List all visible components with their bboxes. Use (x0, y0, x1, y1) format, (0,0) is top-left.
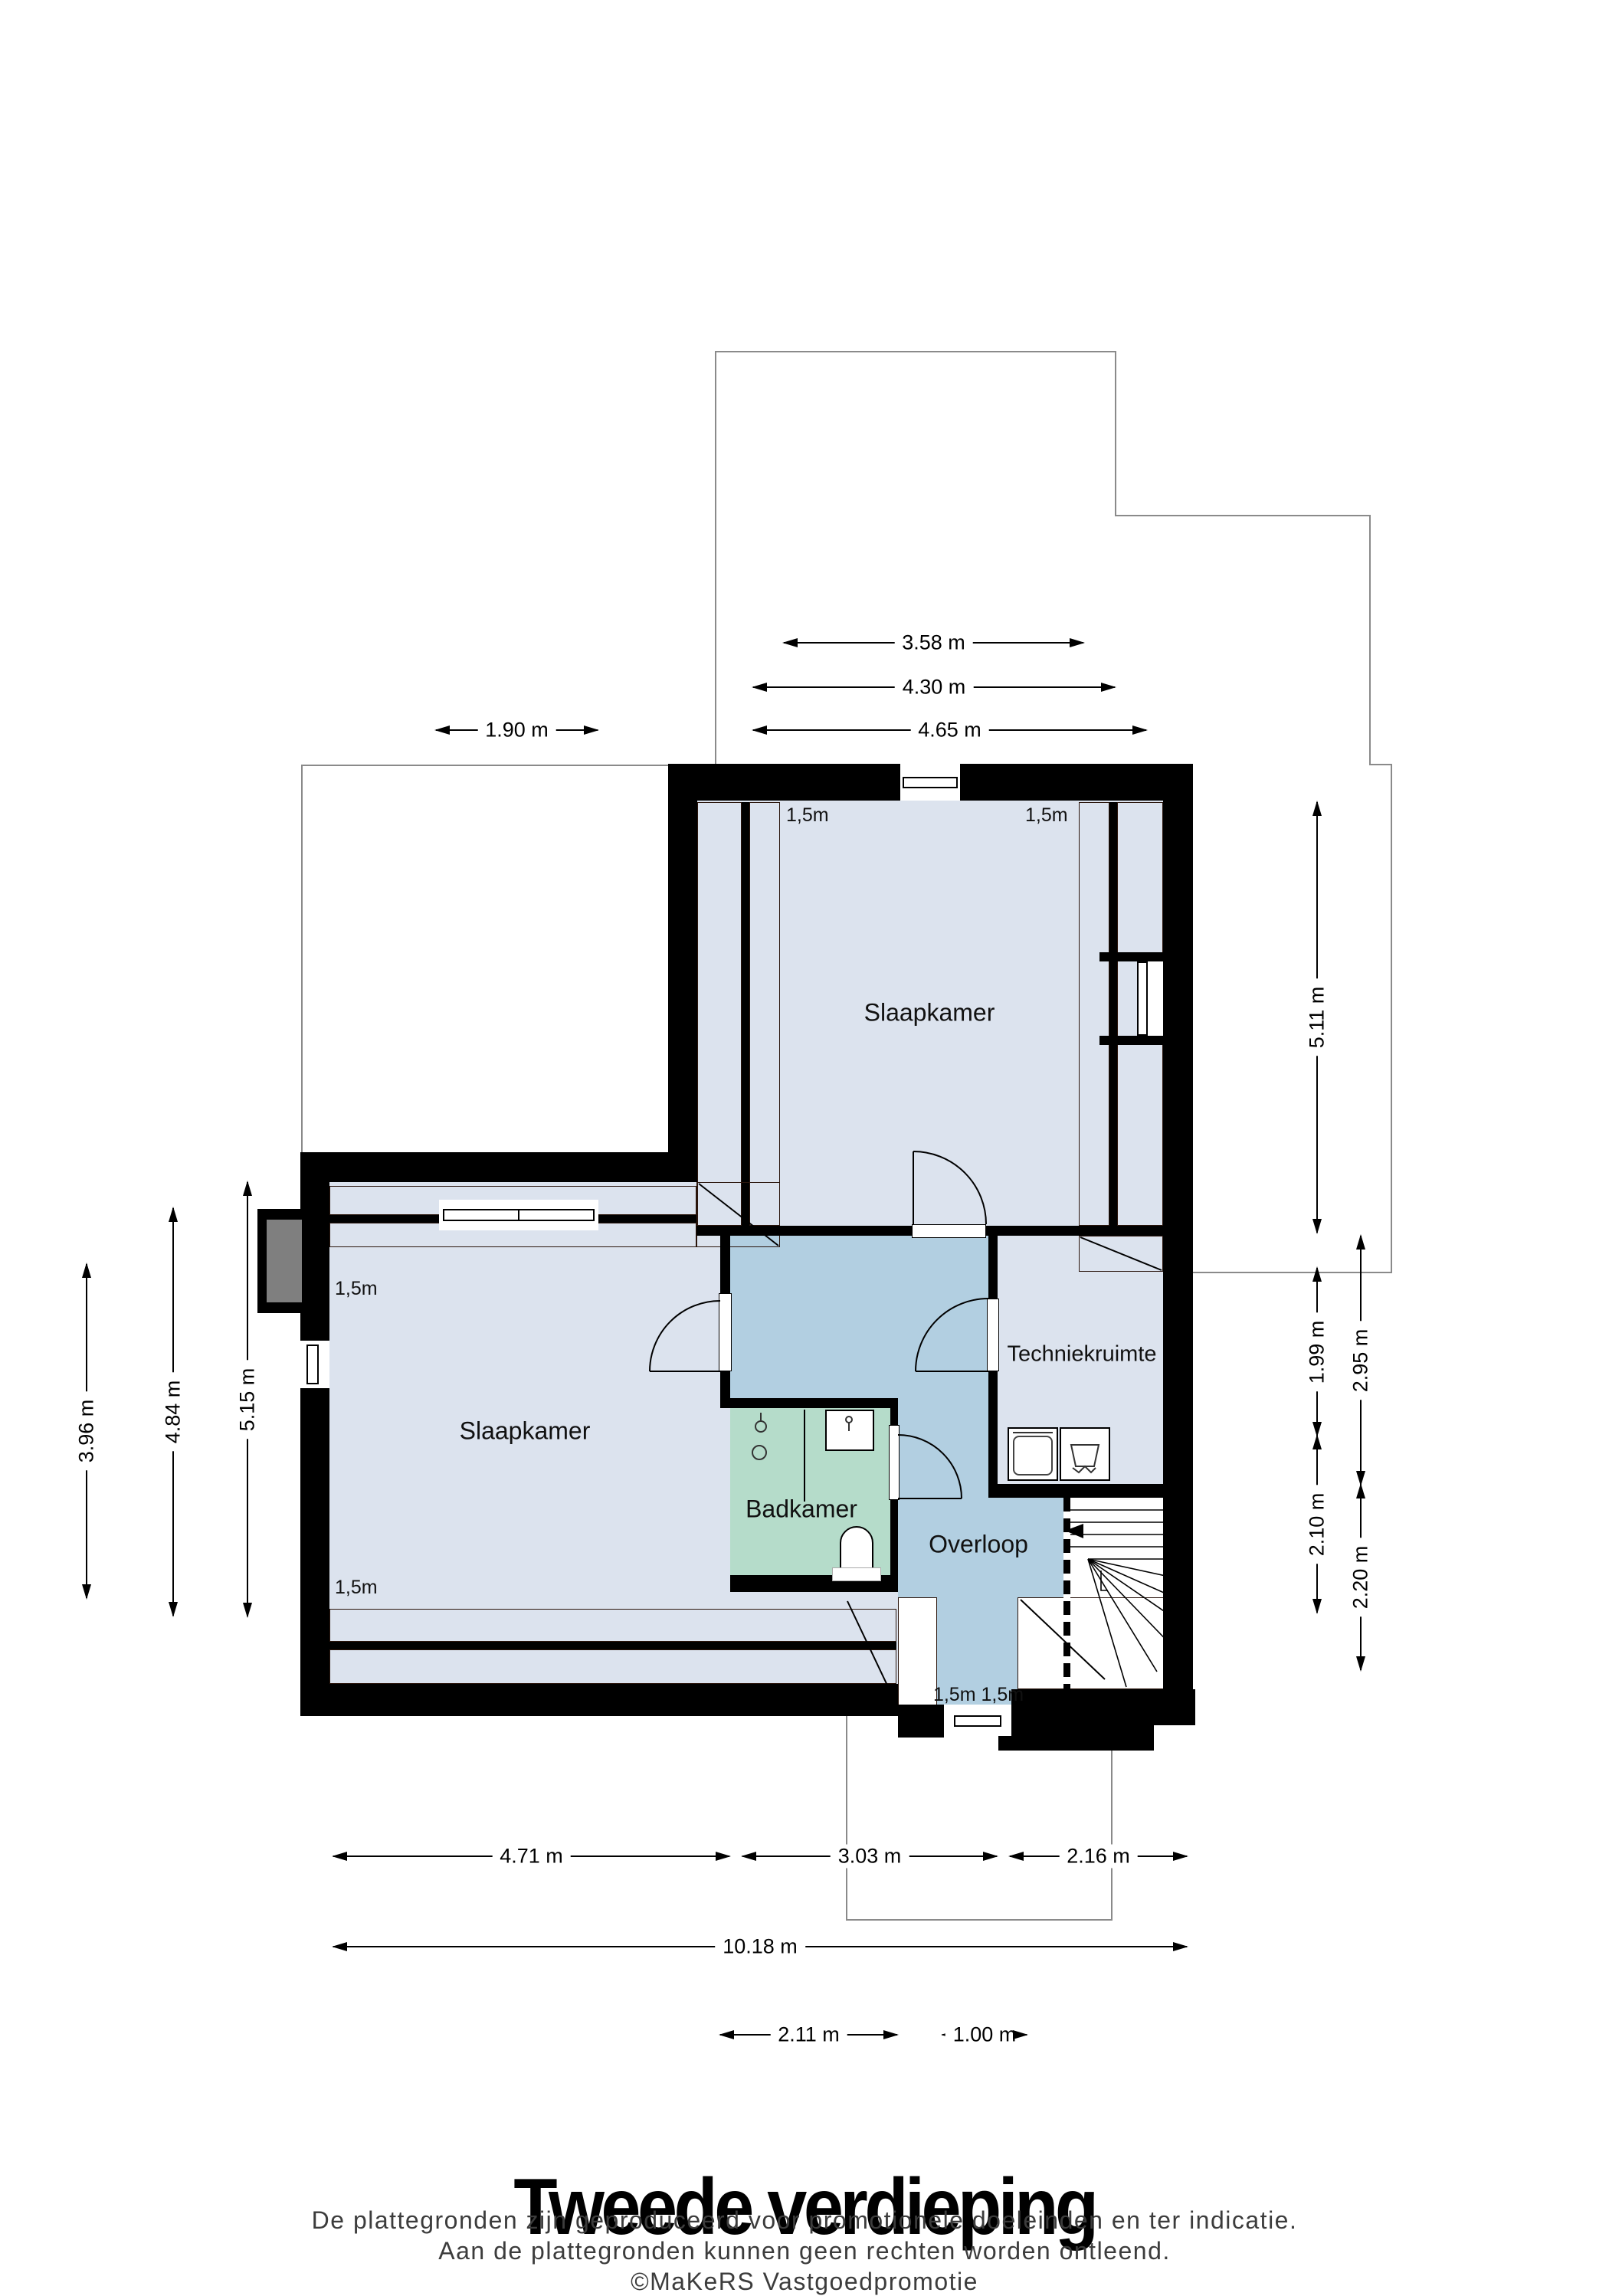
washbasin (825, 1410, 874, 1451)
disclaimer-line-2: Aan de plattegronden kunnen geen rechten… (438, 2237, 1171, 2265)
dimension-bottom-2-11: 2.11 m (720, 2034, 897, 2036)
dimension-label: 1.90 m (477, 719, 556, 742)
stairwell-dashed-edge (1063, 1498, 1070, 1689)
landing-floor-upper (730, 1236, 988, 1398)
roof-hatch-bump-left-wedge (898, 1597, 937, 1716)
roof-hatch-bottom-right (1018, 1597, 1183, 1689)
dimension-label: 10.18 m (715, 1935, 805, 1959)
roof-outline-right-horizontal (1193, 1272, 1392, 1273)
wall-bottom-step (998, 1724, 1154, 1751)
height-contour-top-bedroom-right (1109, 802, 1117, 1226)
window-right-recess-frame (1137, 961, 1148, 1036)
door-frame-top-bedroom (912, 1224, 986, 1238)
wall-bathroom-right-upper (890, 1408, 898, 1426)
wall-flatroof-bottom (300, 1152, 697, 1182)
wall-top-right-segment (960, 764, 1193, 801)
door-frame-bathroom (889, 1425, 900, 1500)
flat-roof-area (301, 765, 670, 1154)
roof-hatch-top-bedroom-right-inner (1079, 802, 1109, 1226)
wall-bottom-right (1011, 1689, 1195, 1725)
dimension-bottom-4-71: 4.71 m (333, 1855, 729, 1857)
room-label-bathroom: Badkamer (746, 1495, 857, 1524)
wall-upper-left (668, 801, 697, 1152)
door-frame-utility (987, 1299, 999, 1371)
dimension-right-1-99: 1.99 m (1316, 1268, 1318, 1436)
roof-outline-top-horizontal (715, 351, 1115, 352)
dimension-label: 4.30 m (895, 676, 974, 699)
wall-utility-bottom (988, 1484, 1193, 1498)
roof-outline-bottom-left-vertical (846, 1716, 847, 1919)
window-right-recess-sill (1148, 961, 1163, 1036)
dimension-bottom-3-03: 3.03 m (742, 1855, 997, 1857)
roof-outline-step1-horizontal (1115, 515, 1369, 516)
dimension-bottom-1-00: 1.00 m (942, 2034, 1027, 2036)
dimension-label: 1.00 m (945, 2023, 1024, 2047)
wall-utility-left-lower (988, 1371, 998, 1484)
dimension-label: 1.99 m (1306, 1312, 1329, 1391)
chimney-body (267, 1220, 302, 1302)
height-contour-top-bedroom-left (742, 802, 749, 1226)
dimension-label: 5.15 m (236, 1360, 260, 1439)
roof-outline-top-left-vertical (715, 351, 716, 764)
dryer (1060, 1427, 1110, 1481)
roof-outline-step1-vertical (1115, 351, 1116, 515)
disclaimer-line-3: ©MaKeRS Vastgoedpromotie (631, 2268, 978, 2296)
toilet-tank (832, 1567, 881, 1581)
roof-hatch-left-bedroom-bottom-outer (329, 1649, 896, 1684)
roof-outline-step2-vertical (1369, 515, 1371, 764)
dimension-top-1-90: 1.90 m (436, 729, 598, 731)
room-label-bedroom-top: Slaapkamer (864, 999, 995, 1027)
dimension-label: 4.84 m (162, 1373, 185, 1452)
dimension-left-5-15: 5.15 m (247, 1182, 248, 1616)
dimension-right-2-20: 2.20 m (1360, 1485, 1362, 1670)
dimension-label: 2.16 m (1059, 1845, 1138, 1869)
roof-outline-bottom-horizontal (846, 1919, 1113, 1921)
roof-outline-right-vertical (1391, 764, 1392, 1272)
wall-bottom-left (300, 1684, 898, 1716)
wall-bedroom-landing-upper (720, 1236, 730, 1295)
dimension-bottom-10-18: 10.18 m (333, 1946, 1187, 1947)
window-top-bedroom-top-frame (903, 777, 958, 788)
washing-machine-drum (1013, 1436, 1053, 1476)
wall-recess-bottom-jog (1099, 1036, 1163, 1045)
height-marker-left-bedroom-lower: 1,5m (335, 1577, 378, 1599)
dimension-right-5-11: 5.11 m (1316, 802, 1318, 1233)
height-marker-bottom-pair: 1,5m 1,5m (933, 1684, 1024, 1706)
dimension-label: 2.95 m (1349, 1321, 1373, 1400)
roof-hatch-utility-corner (1079, 1236, 1163, 1272)
toilet-bowl (840, 1526, 873, 1572)
wall-left-outer-upper (300, 1182, 329, 1341)
landing-floor-mid (898, 1398, 988, 1498)
roof-hatch-top-bedroom-left-inner (749, 802, 780, 1226)
dimension-right-2-95: 2.95 m (1360, 1236, 1362, 1485)
window-bottom-bump-frame (954, 1715, 1001, 1727)
roof-outline-bottom-right-vertical (1111, 1751, 1113, 1919)
window-left-bedroom-dormer-mullion (518, 1209, 519, 1221)
roof-outline-step2-horizontal (1369, 764, 1391, 765)
height-marker-top-bedroom-left: 1,5m (786, 804, 829, 827)
room-label-utility: Techniekruimte (1007, 1342, 1156, 1367)
dimension-right-2-10: 2.10 m (1316, 1436, 1318, 1613)
height-marker-top-bedroom-right: 1,5m (1025, 804, 1068, 827)
door-frame-left-bedroom (719, 1293, 732, 1371)
dimension-left-3-96: 3.96 m (86, 1264, 87, 1598)
room-label-bedroom-left: Slaapkamer (460, 1417, 591, 1446)
dimension-label: 2.10 m (1306, 1485, 1329, 1564)
wall-bedroom-landing-lower (720, 1371, 730, 1408)
wall-top-left-segment (668, 764, 900, 801)
floor-plan-page: { "title": "Tweede verdieping", "disclai… (0, 0, 1609, 2276)
window-left-wall-frame (306, 1345, 319, 1384)
height-contour-left-bedroom-bottom (329, 1642, 896, 1649)
wall-bathroom-top (730, 1398, 898, 1408)
roof-hatch-corner-hip (696, 1182, 780, 1247)
dimension-label: 2.11 m (770, 2023, 847, 2047)
wall-recess-top-jog (1099, 952, 1163, 961)
roof-hatch-top-bedroom-left-outer (697, 802, 742, 1226)
dimension-label: 3.03 m (831, 1845, 909, 1869)
room-label-landing: Overloop (929, 1531, 1028, 1559)
dimension-label: 4.71 m (492, 1845, 571, 1869)
wall-bump-left (898, 1705, 944, 1738)
wall-mid-right (986, 1226, 1193, 1236)
dimension-label: 4.65 m (910, 719, 989, 742)
dimension-label: 5.11 m (1306, 979, 1329, 1056)
dimension-top-4-65: 4.65 m (753, 729, 1146, 731)
wall-left-outer-lower (300, 1388, 329, 1716)
dimension-label: 3.58 m (894, 631, 973, 655)
wall-right-outer (1163, 801, 1193, 1725)
dimension-label: 2.20 m (1349, 1538, 1373, 1617)
height-marker-left-bedroom-upper: 1,5m (335, 1278, 378, 1300)
wall-mid-left (696, 1226, 912, 1236)
roof-hatch-left-bedroom-bottom-inner (329, 1609, 896, 1642)
dimension-left-4-84: 4.84 m (172, 1208, 174, 1616)
dimension-label: 3.96 m (75, 1392, 99, 1471)
wall-utility-left-upper (988, 1236, 998, 1300)
dimension-top-4-30: 4.30 m (753, 686, 1115, 688)
dimension-top-3-58: 3.58 m (784, 642, 1083, 644)
dimension-bottom-2-16: 2.16 m (1010, 1855, 1187, 1857)
disclaimer-line-1: De plattegronden zijn geproduceerd voor … (312, 2206, 1298, 2235)
